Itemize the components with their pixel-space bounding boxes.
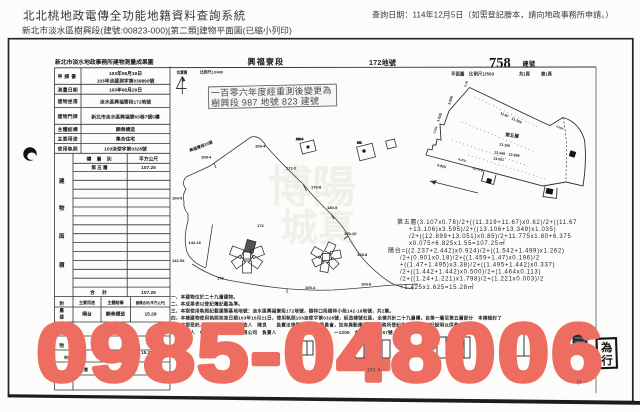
svg-text:鋼骨構造: 鋼骨構造 <box>115 126 135 133</box>
svg-text:新北市淡水地政事務所建物測量成果圖: 新北市淡水地政事務所建物測量成果圖 <box>55 58 154 66</box>
svg-text:查詢日期：114年12月5日（如需登記謄本，請向地政事務所申: 查詢日期：114年12月5日（如需登記謄本，請向地政事務所申請。） <box>372 10 613 20</box>
svg-text:172: 172 <box>257 223 264 228</box>
svg-text:121: 121 <box>357 141 362 145</box>
svg-text:測量日期: 測量日期 <box>58 86 78 93</box>
svg-text:132-4: 132-4 <box>296 137 304 141</box>
svg-text:+1.425x1.625=15.28㎡: +1.425x1.625=15.28㎡ <box>400 283 474 291</box>
svg-text:+13.106)x3.595)/2+((13.106+13.: +13.106)x3.595)/2+((13.106+13.349)x1.035… <box>409 227 556 233</box>
svg-text:共1頁: 共1頁 <box>519 71 531 78</box>
svg-text:/2+((12.899+13.051)x0.85)/2+11: /2+((12.899+13.051)x0.85)/2+11.775x1.80+… <box>409 234 572 240</box>
svg-text:x0.075+6.825x1.55=107.25㎡: x0.075+6.825x1.55=107.25㎡ <box>409 239 506 247</box>
svg-text:0985-048006: 0985-048006 <box>37 307 605 398</box>
svg-text:面: 面 <box>59 232 65 240</box>
svg-text:第五層: 第五層 <box>91 164 108 171</box>
svg-text:190-10: 190-10 <box>344 231 357 236</box>
svg-text:位置圖: 位置圖 <box>177 69 188 74</box>
svg-text:第1頁: 第1頁 <box>541 71 553 78</box>
svg-text:109-5: 109-5 <box>172 196 183 201</box>
svg-text:172-2: 172-2 <box>286 166 297 171</box>
svg-text:建物坐落: 建物坐落 <box>57 98 78 105</box>
svg-text:105-4: 105-4 <box>305 285 316 290</box>
svg-text:面積合計(平方公尺): 面積合計(平方公尺) <box>136 300 165 305</box>
svg-text:107.25: 107.25 <box>141 290 156 296</box>
svg-text:103. 0. -: 103. 0. - <box>367 367 385 374</box>
svg-text:/2+((1.24+1.221)x1.798)/2+(1.2: /2+((1.24+1.221)x1.798)/2+(1.221x0.003)/… <box>400 277 544 283</box>
svg-text:新北市淡水區樹興段(建號:00823-000)[第二類]建物: 新北市淡水區樹興段(建號:00823-000)[第二類]建物平面圖(已縮小列印) <box>22 25 292 36</box>
svg-text:合 計: 合 計 <box>90 289 110 296</box>
svg-text:109-4: 109-4 <box>255 144 266 149</box>
svg-text:比例尺1/2400: 比例尺1/2400 <box>200 69 223 74</box>
svg-text:樓 層 別: 樓 層 別 <box>86 156 113 163</box>
svg-text:淡水區興福寮段172地號: 淡水區興福寮段172地號 <box>100 98 151 105</box>
svg-text:主體結構: 主體結構 <box>58 126 78 133</box>
svg-text:108-8: 108-8 <box>357 252 368 257</box>
svg-text:180-9: 180-9 <box>327 205 338 210</box>
svg-text:103年08月29日: 103年08月29日 <box>109 86 142 93</box>
svg-text:平方公尺: 平方公尺 <box>139 155 158 162</box>
svg-text:103年淡建測字第039890號: 103年淡建測字第039890號 <box>97 78 155 85</box>
svg-text:新北市淡水區興福寮65巷7號5樓: 新北市淡水區興福寮65巷7號5樓 <box>91 113 159 120</box>
svg-text:第五層(3.107x0.78)/2+((11.319+11.: 第五層(3.107x0.78)/2+((11.319+11.67)x0.62)/… <box>397 218 577 226</box>
svg-text:一、本建物位於二十九層建物。: 一、本建物位於二十九層建物。 <box>171 294 238 301</box>
svg-text:172: 172 <box>217 276 224 281</box>
svg-text:申請書: 申請書 <box>58 73 78 80</box>
svg-text:108-4: 108-4 <box>201 155 212 160</box>
svg-text:建: 建 <box>58 177 65 185</box>
svg-text:103年08月19日: 103年08月19日 <box>109 70 142 77</box>
svg-text:109-8: 109-8 <box>361 282 372 287</box>
svg-text:使用執照: 使用執照 <box>57 145 78 152</box>
svg-text:107.25: 107.25 <box>141 165 156 171</box>
svg-text:172地號: 172地號 <box>369 58 396 67</box>
svg-text:附: 附 <box>59 300 64 307</box>
svg-text:103淡使字第0328號: 103淡使字第0328號 <box>104 145 147 152</box>
svg-text:集合住宅: 集合住宅 <box>115 136 135 143</box>
svg-text:142-54: 142-54 <box>172 258 185 263</box>
svg-text:主體結構: 主體結構 <box>108 299 124 305</box>
svg-text:興福寮段: 興福寮段 <box>248 57 285 67</box>
svg-text:北北桃地政電傳全功能地籍資料查詢系統: 北北桃地政電傳全功能地籍資料查詢系統 <box>23 9 246 23</box>
svg-text:/2+((1.442+1.442)x0.500)/2+(1.: /2+((1.442+1.442)x0.500)/2+(1.464x0.113) <box>400 270 541 276</box>
svg-text:積: 積 <box>58 261 65 269</box>
svg-text:物: 物 <box>59 204 65 212</box>
svg-text:城真: 城真 <box>280 208 356 250</box>
svg-text:主要用途: 主要用途 <box>58 136 78 143</box>
svg-text:建物門牌: 建物門牌 <box>57 113 78 120</box>
svg-text:平面圖 比例尺1/500: 平面圖 比例尺1/500 <box>451 71 495 78</box>
svg-text:176-8: 176-8 <box>311 185 322 190</box>
svg-text:/2+(0.901x0.18)/2+((1.459+1.47: /2+(0.901x0.18)/2+((1.459+1.47)x0.196)/2 <box>400 256 540 262</box>
svg-text:+((1.47+1.495)x3.38)/2+((1.495: +((1.47+1.495)x3.38)/2+((1.495+1.442)x0.… <box>400 263 555 269</box>
svg-text:陽台=((2.237+2.442)x0.924)/2+((1: 陽台=((2.237+2.442)x0.924)/2+((1.542+1.499… <box>388 247 565 255</box>
svg-text:758: 758 <box>489 56 511 72</box>
svg-text:主要用途: 主要用途 <box>79 299 95 305</box>
svg-text:142-16: 142-16 <box>189 240 202 245</box>
